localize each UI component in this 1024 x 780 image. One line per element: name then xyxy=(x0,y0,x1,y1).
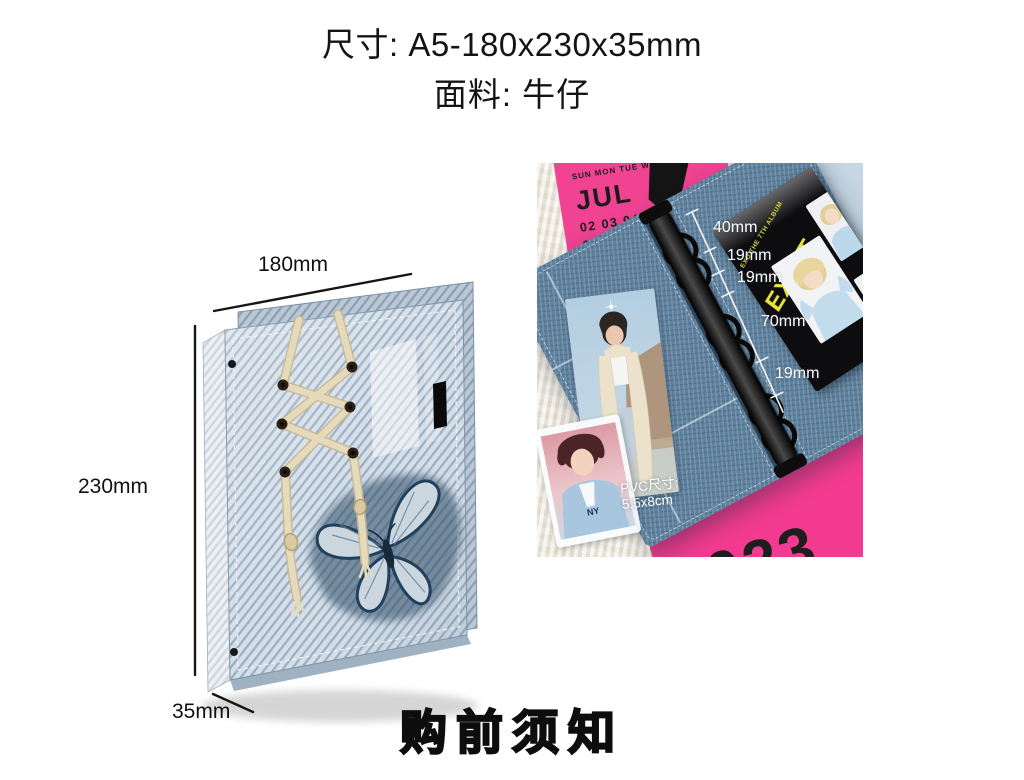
purchase-notice-title: 购前须知 xyxy=(0,694,1024,763)
size-title: 尺寸: A5-180x230x35mm xyxy=(0,18,1024,66)
pvc-size-note: PVC尺寸: 5.5x8cm xyxy=(620,475,681,512)
fabric-title: 面料: 牛仔 xyxy=(0,68,1024,116)
ring-measurement: 19mm xyxy=(727,247,771,265)
clear-window xyxy=(370,339,419,458)
height-dimension-label: 230mm xyxy=(78,475,148,499)
ring-measurement: 19mm xyxy=(775,365,819,383)
width-dimension-label: 180mm xyxy=(258,253,328,277)
dimension-diagram: 180mm 230mm 35mm xyxy=(0,120,520,660)
rivet-bottom xyxy=(230,648,238,656)
ring-measurement: 19mm xyxy=(737,269,781,287)
rivet-top xyxy=(228,360,236,368)
ring-measurement: 40mm xyxy=(713,219,757,237)
ring-measurement: 70mm xyxy=(761,313,805,331)
interior-photo: SUN MON TUE WED 01 JUL 02 03 04 05 0 09 … xyxy=(537,163,863,557)
elastic-clasp xyxy=(433,381,447,429)
